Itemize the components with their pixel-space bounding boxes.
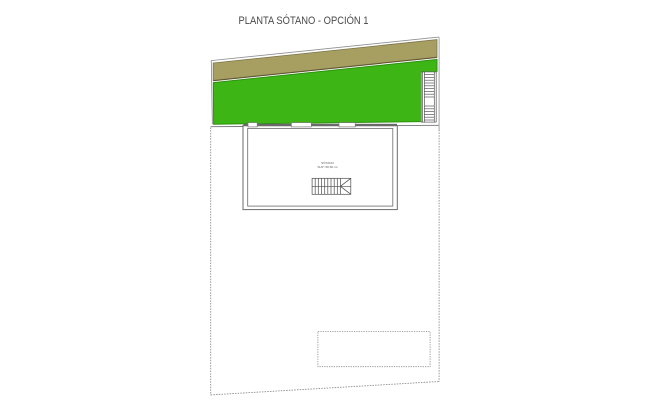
svg-text:SUP: 58,60 m²: SUP: 58,60 m² bbox=[317, 165, 337, 169]
svg-text:PLANTA SÓTANO - OPCIÓN 1: PLANTA SÓTANO - OPCIÓN 1 bbox=[239, 14, 369, 27]
